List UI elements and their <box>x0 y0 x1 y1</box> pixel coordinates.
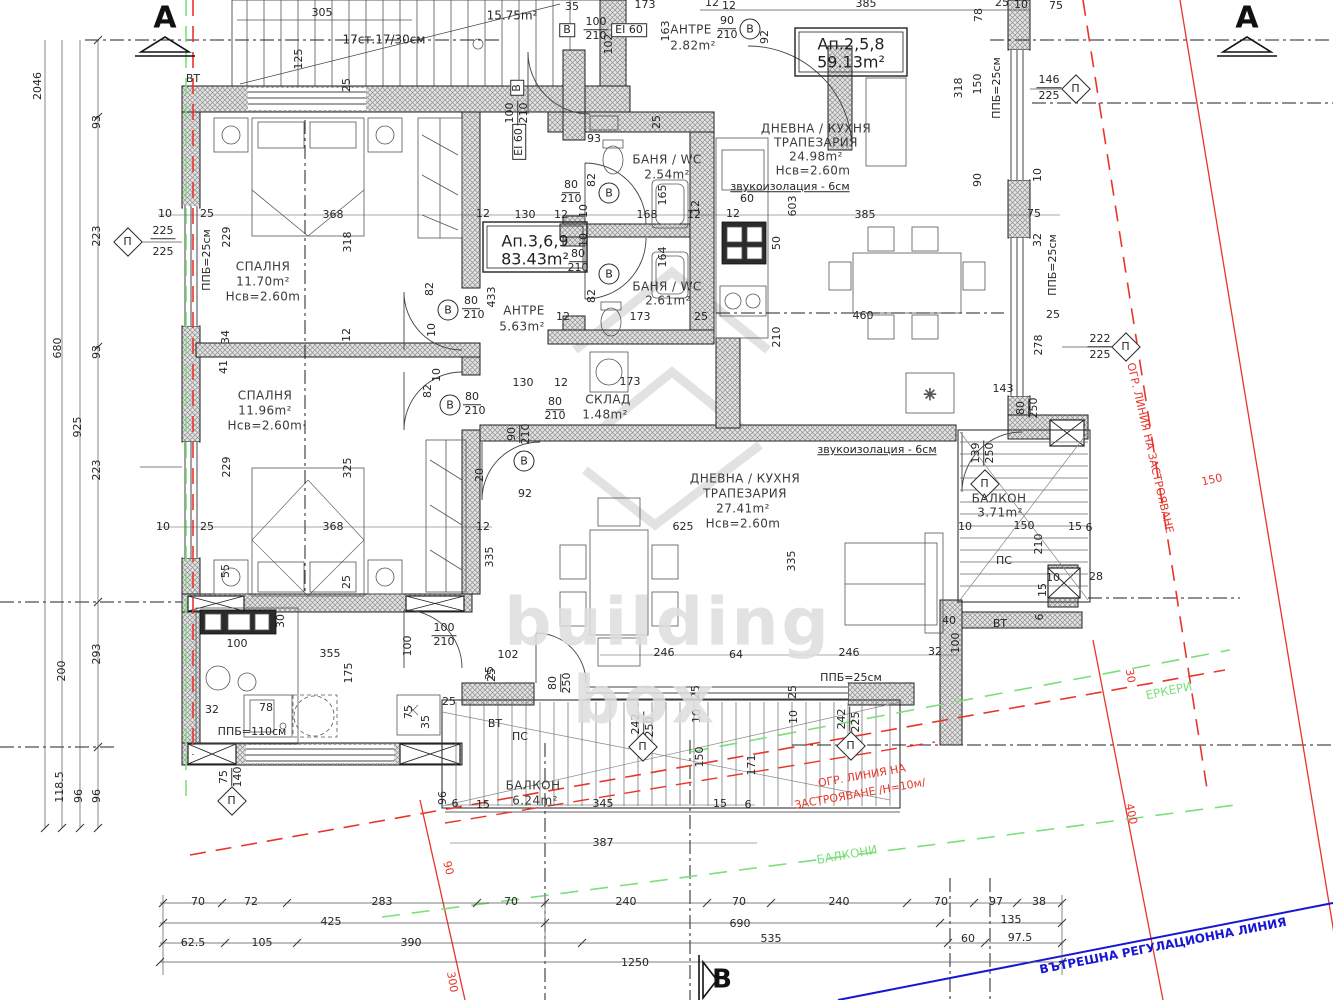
dimension-lines <box>41 10 1114 975</box>
dim: 425 <box>321 916 342 928</box>
wall-tag: ППБ=25см <box>1047 234 1059 296</box>
dim: 460 <box>853 310 874 322</box>
dim: 278 <box>1033 335 1045 356</box>
dim: 200 <box>56 661 68 682</box>
dim: 97 <box>989 896 1003 908</box>
dim: 385 <box>856 0 877 10</box>
dim: 12 <box>554 377 568 389</box>
dim: 25 <box>442 696 456 708</box>
dim: 75 <box>218 768 232 786</box>
room-name: АНТРЕ <box>670 24 711 37</box>
dim: 12 <box>705 0 719 9</box>
room-name: БАЛКОН <box>506 780 561 793</box>
dim: 210 <box>434 636 455 648</box>
apartment-area: 83.43m² <box>501 252 569 269</box>
dim: 97.5 <box>1008 932 1033 944</box>
dim: 60 <box>740 193 754 205</box>
dim: 93 <box>587 133 601 145</box>
dim: 690 <box>730 918 751 930</box>
dim: 240 <box>829 896 850 908</box>
dim: 139 <box>970 441 984 466</box>
dim: 318 <box>953 78 965 99</box>
dim: 225 <box>151 225 176 239</box>
pilaster-letter: П <box>1072 83 1080 95</box>
room-height: Нсв=2.60m <box>706 518 781 531</box>
dim: 70 <box>504 896 518 908</box>
dim: 240 <box>616 896 637 908</box>
room-area: 11.96m² <box>238 405 292 418</box>
dim: 72 <box>244 896 258 908</box>
dim: 10 <box>958 521 972 533</box>
dim: 60 <box>961 933 975 945</box>
dim: 625 <box>673 521 694 533</box>
dim: 173 <box>620 376 641 388</box>
dim: 6 <box>452 798 459 810</box>
dim: 32 <box>1032 233 1044 247</box>
door-tag-v: В <box>440 395 461 416</box>
dim: 210 <box>518 103 530 124</box>
dim: 80 <box>462 295 480 309</box>
dim: 210 <box>464 309 485 321</box>
dim: 12 <box>476 208 490 220</box>
dim: 80 <box>463 391 481 405</box>
vt-label: ВТ <box>993 618 1007 630</box>
dim: 10 <box>1014 0 1028 11</box>
room-area: 1.48m² <box>582 409 628 422</box>
dim: 293 <box>91 644 103 665</box>
dim: 100 <box>504 101 518 126</box>
pilaster-letter: П <box>124 236 132 248</box>
dim: 82 <box>586 289 598 303</box>
room-area: 6.24m² <box>512 795 558 808</box>
apartment-id: Ап.3,6,9 <box>501 234 568 251</box>
dim: 34 <box>220 330 232 344</box>
room-name: БАНЯ / WC <box>632 154 701 167</box>
room-area: 11.70m² <box>236 276 290 289</box>
dim: 603 <box>787 196 799 217</box>
dim: 146 <box>1037 74 1062 88</box>
dim: 250 <box>984 443 996 464</box>
dim: 680 <box>52 338 64 359</box>
dim: 335 <box>484 547 496 568</box>
door-tag-v: В <box>438 300 459 321</box>
dim: 10 <box>1032 168 1044 182</box>
dim: 250 <box>1028 398 1040 419</box>
dim: 210 <box>520 424 532 445</box>
svg-text:✳: ✳ <box>923 385 936 404</box>
room-height: Нсв=2.60m· <box>228 420 307 433</box>
vt-label: ВТ <box>186 73 200 85</box>
dim: 10 <box>578 233 590 247</box>
dim: 318 <box>342 232 354 253</box>
pilaster-letter: П <box>1122 341 1130 353</box>
watermark-text: box <box>573 665 717 734</box>
dim: 12 <box>687 209 701 221</box>
dim: 82 <box>422 384 434 398</box>
room-name: СПАЛНЯ <box>236 261 290 274</box>
dim: 173 <box>630 311 651 323</box>
dim: 80 <box>562 179 580 193</box>
dim: 25 <box>341 575 353 589</box>
fire-door-tag: EI 60 <box>611 23 647 37</box>
dim: 143 <box>993 383 1014 395</box>
room-name: ДНЕВНА / КУХНЯ <box>761 123 871 136</box>
dim: 25 <box>694 311 708 323</box>
room-name: СКЛАД <box>585 394 631 407</box>
dim-red: 90 <box>441 860 456 877</box>
dim: 165 <box>657 185 669 206</box>
dim: 140 <box>232 767 244 788</box>
pilaster-letter: П <box>639 741 647 753</box>
dim-ticks <box>156 899 1066 966</box>
dim: 25 <box>995 0 1009 9</box>
dim: 433 <box>486 287 498 308</box>
dim: 15 <box>476 799 490 811</box>
dim: 135 <box>1001 914 1022 926</box>
dim: 229 <box>221 227 233 248</box>
dim: 225 <box>850 712 862 733</box>
dim: 82 <box>424 282 436 296</box>
dim: 130 <box>513 377 534 389</box>
room-height: Нсв=2.60m <box>226 291 301 304</box>
fire-door-tag: EI 60 <box>512 124 526 160</box>
dim: 75 <box>1027 208 1041 220</box>
dim: 20 <box>474 468 486 482</box>
dim: 535 <box>761 933 782 945</box>
dim: 925 <box>72 417 84 438</box>
door-tag-v: В <box>559 23 575 37</box>
room-name: БАЛКОН <box>972 493 1027 506</box>
dim: 62.5 <box>181 937 206 949</box>
dim: 100 <box>227 638 248 650</box>
insulation-note: звукоизолация - 6см <box>817 444 936 456</box>
dim: 12 <box>722 0 736 12</box>
dim: 96 <box>73 789 85 803</box>
room-height: Нсв=2.60m <box>776 165 851 178</box>
dim: 210 <box>717 29 738 41</box>
floor-plan-page: ✳ <box>0 0 1333 1000</box>
dim: 28 <box>1089 571 1103 583</box>
dim: 150 <box>694 747 706 768</box>
dim: 164 <box>657 247 669 268</box>
dim: 32 <box>928 646 942 658</box>
door-tag-v: В <box>514 451 535 472</box>
dim: 75 <box>403 705 415 719</box>
dim-red: 30 <box>1123 668 1137 684</box>
dim: 15 <box>713 798 727 810</box>
door-tag-v: В <box>599 183 620 204</box>
room-area: 2.54m² <box>644 169 690 182</box>
dim: 100 <box>584 16 609 30</box>
dim: 387 <box>593 837 614 849</box>
room-area: 24.98m² <box>789 151 843 164</box>
dim: 93 <box>91 345 103 359</box>
dim: 35 <box>565 1 579 13</box>
dim-red: 300 <box>444 971 459 994</box>
dim: 130 <box>515 209 536 221</box>
dim: 355 <box>320 648 341 660</box>
dim: 12 <box>476 521 490 533</box>
dim: 12 <box>726 208 740 220</box>
dim: 173 <box>635 0 656 11</box>
dim: 1250 <box>621 957 649 969</box>
dim: 96 <box>91 789 103 803</box>
dim: 25 <box>787 685 799 699</box>
wall-tag: ППБ=110см <box>218 726 287 738</box>
dim: 100 <box>432 622 457 636</box>
dim: 15 <box>1068 521 1082 533</box>
dim: 168 <box>637 209 658 221</box>
dim: 10 <box>156 521 170 533</box>
dim: 225 <box>153 246 174 258</box>
dim: 80 <box>569 248 587 262</box>
watermark-text: building <box>504 587 832 656</box>
dim: 90 <box>506 425 520 443</box>
dim: 225 <box>1090 349 1111 361</box>
dim: 242 <box>836 707 850 732</box>
dim: 2046 <box>32 72 44 100</box>
dim: 246 <box>839 647 860 659</box>
dim: 250 <box>561 673 573 694</box>
dim: 223 <box>91 460 103 481</box>
dim: 150 <box>972 74 984 95</box>
room-area: 3.71m² <box>977 507 1023 520</box>
floor-plan-drawing: ✳ <box>0 0 1333 1000</box>
dim: 92 <box>759 30 771 44</box>
dim: 25 <box>200 521 214 533</box>
dim: 325 <box>342 458 354 479</box>
dim: 368 <box>323 521 344 533</box>
dim: 80 <box>546 396 564 410</box>
dim: 171 <box>746 755 758 776</box>
dim: 229 <box>221 457 233 478</box>
dim: 12 <box>341 328 353 342</box>
wall-tag: ППБ=25см <box>820 672 882 684</box>
dim: 78 <box>259 702 273 714</box>
dim: 90 <box>972 173 984 187</box>
dim: 105 <box>252 937 273 949</box>
dim: 210 <box>465 405 486 417</box>
dim: 385 <box>855 209 876 221</box>
dim: 6 <box>1034 614 1046 621</box>
dim: 345 <box>593 798 614 810</box>
dim: 12 <box>556 311 570 323</box>
dim: 223 <box>91 226 103 247</box>
dim: 10 <box>158 208 172 220</box>
insulation-note: звукоизолация - 6см <box>730 181 849 193</box>
room-name: АНТРЕ <box>503 305 544 318</box>
dim: 50 <box>771 236 783 250</box>
dim: 175 <box>343 663 355 684</box>
dim: 210 <box>771 327 783 348</box>
dim: 6 <box>1086 522 1093 534</box>
dim: 390 <box>401 937 422 949</box>
dim: 80 <box>547 674 561 692</box>
dim: 150 <box>1014 520 1035 532</box>
dim: 96 <box>437 791 449 805</box>
dim: 25 <box>484 666 496 680</box>
ps-label: ПС <box>996 555 1012 567</box>
dim: 25 <box>341 78 353 92</box>
dim: 25 <box>1046 309 1060 321</box>
dim: 10 <box>578 204 590 218</box>
dim: 210 <box>586 30 607 42</box>
dim: 35 <box>420 715 432 729</box>
wall-tag: ППБ=25см <box>991 57 1003 119</box>
dim: 90 <box>718 15 736 29</box>
dim: 70 <box>732 896 746 908</box>
dim: 30 <box>275 614 287 628</box>
pilaster-letter: П <box>847 740 855 752</box>
dim: 335 <box>786 551 798 572</box>
ps-label: ПС <box>512 731 528 743</box>
dim: 25 <box>651 115 663 129</box>
dim: 70 <box>191 896 205 908</box>
room-name: ДНЕВНА / КУХНЯ <box>690 473 800 486</box>
dim: 55 <box>220 564 232 578</box>
apartment-area: 59.13m² <box>817 55 885 72</box>
dim: 6 <box>745 799 752 811</box>
room-name: БАНЯ / WC <box>632 281 701 294</box>
dim: 41 <box>218 360 230 374</box>
dim: 210 <box>568 262 589 274</box>
dim: 210 <box>545 410 566 422</box>
section-marker-a-left: А <box>153 2 176 34</box>
dim: 10 <box>426 323 438 337</box>
dim: 118.5 <box>54 771 66 803</box>
section-marker-a-right: А <box>1235 2 1258 34</box>
stair-area: 15.75m² <box>487 10 538 23</box>
door-tag-v: В <box>599 264 620 285</box>
room-name: ТРАПЕЗАРИЯ <box>774 137 858 150</box>
pilaster-letter: П <box>981 478 989 490</box>
dim: 32 <box>205 704 219 716</box>
dim: 75 <box>1049 0 1063 12</box>
door-tag-v: В <box>510 80 524 96</box>
dim: 10 <box>431 368 443 382</box>
dim: 12 <box>554 209 568 221</box>
dim: 78 <box>973 8 985 22</box>
dim: 70 <box>934 896 948 908</box>
dim: 210 <box>1033 534 1045 555</box>
dim: 368 <box>323 209 344 221</box>
dim: 100 <box>950 633 962 654</box>
stair-label: 17ст.17/30см <box>343 34 426 47</box>
room-area: 2.82m² <box>670 40 716 53</box>
room-name: СПАЛНЯ <box>238 390 292 403</box>
pilaster-letter: П <box>228 795 236 807</box>
dim: 38 <box>1032 896 1046 908</box>
dim: 100 <box>402 636 414 657</box>
dim: 125 <box>293 49 305 70</box>
wall-tag: ППБ=25см <box>201 229 213 291</box>
room-area: 27.41m² <box>716 503 770 516</box>
dim: 25 <box>200 208 214 220</box>
dim: 10 <box>788 710 800 724</box>
dim: 92 <box>518 488 532 500</box>
dim: 283 <box>372 896 393 908</box>
dim: 305 <box>312 7 333 19</box>
dim: 40 <box>942 615 956 627</box>
room-name: ТРАПЕЗАРИЯ <box>703 488 787 501</box>
apartment-id: Ап.2,5,8 <box>817 37 884 54</box>
dim: 222 <box>1088 333 1113 347</box>
room-area: 2.61m² <box>645 295 691 308</box>
section-marker-b-bottom: В <box>712 966 732 993</box>
dim: 93 <box>91 115 103 129</box>
dim: 15 <box>1037 583 1049 597</box>
dim: 225 <box>1039 90 1060 102</box>
vt-label: ВТ <box>488 718 502 730</box>
room-area: 5.63m² <box>499 321 545 334</box>
dim: 82 <box>586 173 598 187</box>
